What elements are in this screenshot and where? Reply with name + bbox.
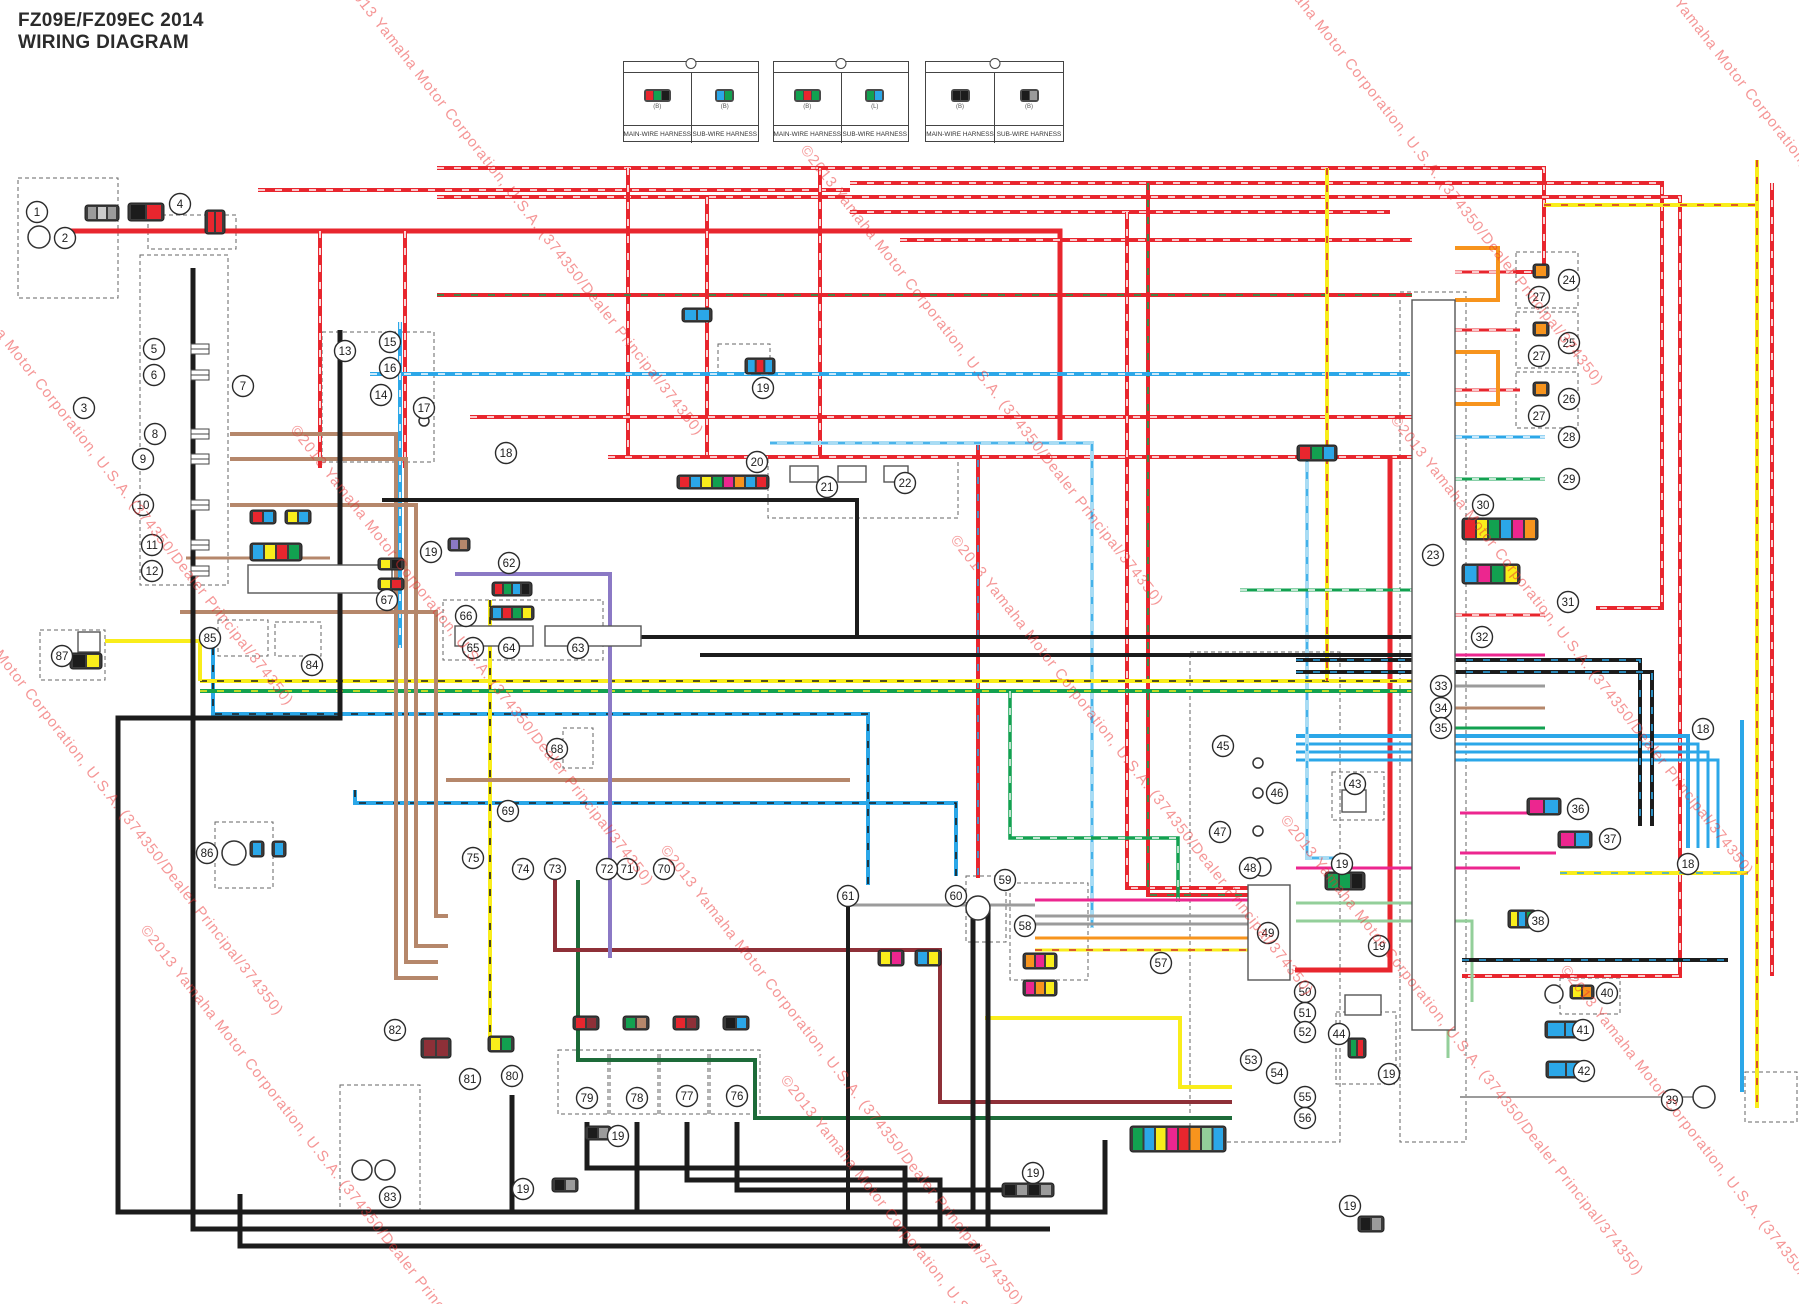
connector-pin xyxy=(491,1038,500,1050)
terminal-box xyxy=(790,466,818,482)
component-callout-number: 31 xyxy=(1562,597,1575,609)
component-callout-number: 84 xyxy=(306,660,319,672)
component-symbol xyxy=(966,896,990,920)
component-callout-number: 3 xyxy=(81,403,87,415)
component-callout-number: 5 xyxy=(151,344,157,356)
wire xyxy=(230,459,438,962)
connector-pin xyxy=(1017,1185,1027,1195)
connector-pin xyxy=(424,1040,435,1056)
connector-pin xyxy=(1036,982,1044,994)
component-callout-number: 60 xyxy=(950,891,963,903)
connector-pin xyxy=(437,1040,448,1056)
component-symbol xyxy=(222,841,246,865)
connector-pin xyxy=(1312,447,1322,459)
component-callout-number: 57 xyxy=(1155,958,1168,970)
connector-pin xyxy=(277,545,287,559)
component-callout-number: 79 xyxy=(581,1093,594,1105)
connector-pin xyxy=(929,952,938,964)
connector-pin xyxy=(713,477,722,487)
connector-pin xyxy=(1046,982,1054,994)
connector-pin xyxy=(264,512,273,522)
component-callout-number: 30 xyxy=(1477,500,1490,512)
connector-pin xyxy=(1168,1128,1178,1150)
component-symbol xyxy=(352,1160,372,1180)
watermark-text: ©2013 Yamaha Motor Corporation, U.S.A. (… xyxy=(1277,812,1647,1279)
connector-pin xyxy=(1372,1218,1381,1230)
connector-pin xyxy=(1525,520,1535,538)
component-callout-number: 87 xyxy=(56,651,69,663)
component-callout-number: 82 xyxy=(389,1025,402,1037)
component-symbol xyxy=(1253,788,1263,798)
component-callout-number: 85 xyxy=(204,633,217,645)
connector-pin xyxy=(746,477,755,487)
component-callout-number: 35 xyxy=(1435,723,1448,735)
component-callout-number: 56 xyxy=(1299,1113,1312,1125)
connector-pin xyxy=(1026,955,1034,967)
watermark-text: ©2013 Yamaha Motor Corporation, U.S.A. (… xyxy=(0,242,297,709)
component-callout-number: 66 xyxy=(460,611,473,623)
connector-pin xyxy=(1041,1185,1051,1195)
connector-pin xyxy=(253,545,263,559)
component-callout-number: 38 xyxy=(1532,916,1545,928)
connector-icon xyxy=(677,475,769,489)
component-symbol xyxy=(1545,985,1563,1003)
component-callout-number: 19 xyxy=(1383,1069,1396,1081)
connector-pin xyxy=(216,212,222,232)
component-callout-number: 53 xyxy=(1245,1055,1258,1067)
connector-pin xyxy=(451,540,458,549)
component-callout-number: 1 xyxy=(34,207,40,219)
wire xyxy=(1148,183,1252,895)
component-callout-number: 4 xyxy=(177,199,184,211)
component-callout-number: 45 xyxy=(1217,741,1230,753)
connector-pin xyxy=(513,608,521,618)
component-callout-number: 17 xyxy=(418,403,431,415)
connector-pin xyxy=(626,1018,635,1028)
wire xyxy=(770,443,1092,928)
wire xyxy=(1455,352,1498,404)
component-callout-number: 42 xyxy=(1578,1066,1591,1078)
connector-pin xyxy=(253,843,261,855)
terminal-box xyxy=(1345,995,1381,1015)
component-callout-number: 19 xyxy=(1344,1201,1357,1213)
connector-pin xyxy=(460,540,467,549)
component-callout-number: 73 xyxy=(549,864,562,876)
wire-stripe xyxy=(213,648,868,885)
connector-pin xyxy=(735,477,744,487)
terminal-box xyxy=(248,565,392,593)
connector-pin xyxy=(1465,566,1477,582)
component-callout-number: 19 xyxy=(517,1184,530,1196)
component-callout-number: 48 xyxy=(1244,863,1257,875)
terminal-box xyxy=(1412,300,1455,1030)
component-callout-number: 80 xyxy=(506,1071,519,1083)
component-callout-number: 44 xyxy=(1333,1029,1346,1041)
connector-pin xyxy=(1156,1128,1166,1150)
component-callout-number: 15 xyxy=(384,337,397,349)
connector-pin xyxy=(493,608,501,618)
connector-pin xyxy=(503,608,511,618)
connector-pin xyxy=(918,952,927,964)
connector-pin xyxy=(1536,266,1546,276)
connector-pin xyxy=(637,1018,646,1028)
connector-pin xyxy=(737,1018,746,1028)
wire-stripe xyxy=(1148,183,1252,895)
component-callout-number: 19 xyxy=(757,383,770,395)
connector-pin xyxy=(724,477,733,487)
component-callout-number: 69 xyxy=(502,806,515,818)
component-callout-number: 2 xyxy=(62,233,68,245)
connector-pin xyxy=(765,360,772,372)
component-callout-number: 77 xyxy=(681,1091,694,1103)
component-callout-number: 19 xyxy=(1027,1168,1040,1180)
watermark-text: ©2013 Yamaha Motor Corporation, U.S.A. (… xyxy=(1557,962,1799,1304)
component-callout-number: 47 xyxy=(1214,827,1227,839)
connector-pin xyxy=(147,205,161,219)
wiring-diagram-canvas: 1234567891011121314151617181818191919191… xyxy=(0,0,1799,1304)
connector-pin xyxy=(1479,566,1491,582)
connector-pin xyxy=(1358,1040,1363,1056)
connector-pin xyxy=(702,477,711,487)
wire xyxy=(213,648,868,885)
connector-pin xyxy=(1133,1128,1143,1150)
connector-pin xyxy=(253,512,262,522)
component-callout-number: 43 xyxy=(1349,779,1362,791)
component-callout-number: 37 xyxy=(1604,834,1617,846)
connector-pin xyxy=(676,1018,685,1028)
connector-pin xyxy=(587,1018,596,1028)
connector-pin xyxy=(1352,874,1362,888)
component-symbol xyxy=(1253,758,1263,768)
connector-pin xyxy=(88,207,96,219)
terminal-box xyxy=(838,466,866,482)
connector-pin xyxy=(726,1018,735,1028)
component-callout-number: 75 xyxy=(467,853,480,865)
wire xyxy=(105,641,200,681)
component-callout-number: 86 xyxy=(201,848,214,860)
component-callout-number: 12 xyxy=(146,566,159,578)
connector-pin xyxy=(504,584,511,594)
component-callout-number: 8 xyxy=(152,429,158,441)
component-callout-number: 14 xyxy=(375,390,388,402)
component-callout-number: 9 xyxy=(140,454,146,466)
connector-pin xyxy=(288,512,297,522)
connector-pin xyxy=(502,1038,511,1050)
connector-pin xyxy=(1545,800,1558,813)
component-callout-number: 29 xyxy=(1563,474,1576,486)
component-callout-number: 36 xyxy=(1572,804,1585,816)
terminal-box xyxy=(78,632,100,652)
connector-pin xyxy=(599,1128,608,1138)
component-callout-number: 20 xyxy=(751,457,764,469)
connector-pin xyxy=(289,545,299,559)
connector-pin xyxy=(495,584,502,594)
connector-pin xyxy=(381,580,390,588)
component-callout-number: 46 xyxy=(1271,788,1284,800)
component-callout-number: 16 xyxy=(384,363,397,375)
connector-pin xyxy=(1214,1128,1224,1150)
connector-pin xyxy=(299,512,308,522)
connector-pin xyxy=(208,212,214,232)
component-callout-number: 27 xyxy=(1533,411,1546,423)
component-callout-number: 63 xyxy=(572,643,585,655)
connector-pin xyxy=(685,310,696,320)
connector-pin xyxy=(1026,982,1034,994)
connector-pin xyxy=(1576,833,1589,846)
connector-pin xyxy=(555,1180,564,1190)
component-callout-number: 18 xyxy=(500,448,513,460)
component-callout-number: 51 xyxy=(1299,1008,1312,1020)
component-callout-number: 41 xyxy=(1577,1025,1590,1037)
component-callout-number: 62 xyxy=(503,558,516,570)
connector-pin xyxy=(588,1128,597,1138)
connector-pin xyxy=(687,1018,696,1028)
connector-pin xyxy=(1202,1128,1212,1150)
component-callout-number: 52 xyxy=(1299,1027,1312,1039)
component-callout-number: 83 xyxy=(384,1192,397,1204)
component-callout-number: 58 xyxy=(1019,921,1032,933)
connector-pin xyxy=(87,655,99,667)
component-callout-number: 59 xyxy=(999,875,1012,887)
connector-pin xyxy=(392,580,401,588)
connector-pin xyxy=(1145,1128,1155,1150)
connector-pin xyxy=(523,608,531,618)
component-callout-number: 22 xyxy=(899,478,912,490)
component-callout-number: 18 xyxy=(1697,724,1710,736)
connector-pin xyxy=(1046,955,1054,967)
connector-pin xyxy=(1324,447,1334,459)
component-symbol xyxy=(28,226,50,248)
component-callout-number: 64 xyxy=(503,643,516,655)
connector-pin xyxy=(1005,1185,1015,1195)
component-callout-number: 23 xyxy=(1427,550,1440,562)
component-callout-number: 55 xyxy=(1299,1092,1312,1104)
component-callout-number: 13 xyxy=(339,346,352,358)
component-callout-number: 19 xyxy=(612,1131,625,1143)
wire xyxy=(555,880,1232,1102)
component-callout-number: 19 xyxy=(425,547,438,559)
component-callout-number: 33 xyxy=(1435,681,1448,693)
component-callout-number: 40 xyxy=(1601,988,1614,1000)
component-callout-number: 26 xyxy=(1563,394,1576,406)
connector-pin xyxy=(131,205,145,219)
wiring-diagram-page: FZ09E/FZ09EC 2014 WIRING DIAGRAM (B) (B)… xyxy=(0,0,1799,1304)
component-callout-number: 32 xyxy=(1476,632,1489,644)
component-callout-number: 67 xyxy=(381,595,394,607)
connector-pin xyxy=(1300,447,1310,459)
connector-pin xyxy=(748,360,755,372)
component-callout-number: 74 xyxy=(517,864,530,876)
connector-pin xyxy=(1519,912,1525,926)
component-callout-number: 72 xyxy=(601,864,614,876)
connector-pin xyxy=(757,360,764,372)
connector-pin xyxy=(1036,955,1044,967)
wire-stripe xyxy=(770,443,1092,928)
connector-pin xyxy=(108,207,116,219)
component-callout-number: 6 xyxy=(151,370,157,382)
component-box xyxy=(1745,1072,1797,1122)
connector-pin xyxy=(680,477,689,487)
component-symbol xyxy=(375,1160,395,1180)
connector-icon xyxy=(1130,1126,1226,1152)
component-callout-number: 19 xyxy=(1336,859,1349,871)
component-symbol xyxy=(1253,826,1263,836)
connector-pin xyxy=(757,477,766,487)
component-callout-number: 24 xyxy=(1563,275,1576,287)
connector-pin xyxy=(522,584,529,594)
connector-pin xyxy=(275,843,283,855)
connector-pin xyxy=(892,952,901,964)
connector-pin xyxy=(98,207,106,219)
connector-pin xyxy=(1548,1023,1564,1036)
component-callout-number: 54 xyxy=(1271,1068,1284,1080)
connector-icon xyxy=(1348,1038,1366,1058)
terminal-box xyxy=(545,626,641,646)
connector-pin xyxy=(1361,1218,1370,1230)
connector-pin xyxy=(1530,800,1543,813)
component-callout-number: 78 xyxy=(631,1093,644,1105)
connector-pin xyxy=(1561,833,1574,846)
connector-pin xyxy=(73,655,85,667)
connector-pin xyxy=(1351,1040,1356,1056)
connector-pin xyxy=(1549,1063,1565,1076)
connector-pin xyxy=(1191,1128,1201,1150)
connector-pin xyxy=(691,477,700,487)
connector-pin xyxy=(881,952,890,964)
watermark-text: ©2013 Yamaha Motor Corporation, U.S.A. (… xyxy=(0,552,287,1019)
connector-pin xyxy=(1179,1128,1189,1150)
connector-pin xyxy=(1511,912,1517,926)
component-box xyxy=(768,456,958,518)
component-symbol xyxy=(1693,1086,1715,1108)
component-callout-number: 27 xyxy=(1533,351,1546,363)
connector-pin xyxy=(1501,520,1511,538)
component-callout-number: 7 xyxy=(240,381,246,393)
connector-pin xyxy=(1536,384,1546,394)
connector-pin xyxy=(1513,520,1523,538)
connector-pin xyxy=(698,310,709,320)
connector-pin xyxy=(566,1180,575,1190)
component-callout-number: 76 xyxy=(731,1091,744,1103)
wire xyxy=(985,1018,1232,1087)
component-callout-number: 28 xyxy=(1563,432,1576,444)
component-callout-number: 18 xyxy=(1682,859,1695,871)
component-callout-number: 34 xyxy=(1435,703,1448,715)
connector-pin xyxy=(265,545,275,559)
connector-pin xyxy=(513,584,520,594)
component-callout-number: 61 xyxy=(842,891,855,903)
connector-pin xyxy=(576,1018,585,1028)
connector-pin xyxy=(1029,1185,1039,1195)
component-callout-number: 21 xyxy=(821,482,834,494)
component-box xyxy=(275,622,321,656)
component-callout-number: 81 xyxy=(464,1074,477,1086)
